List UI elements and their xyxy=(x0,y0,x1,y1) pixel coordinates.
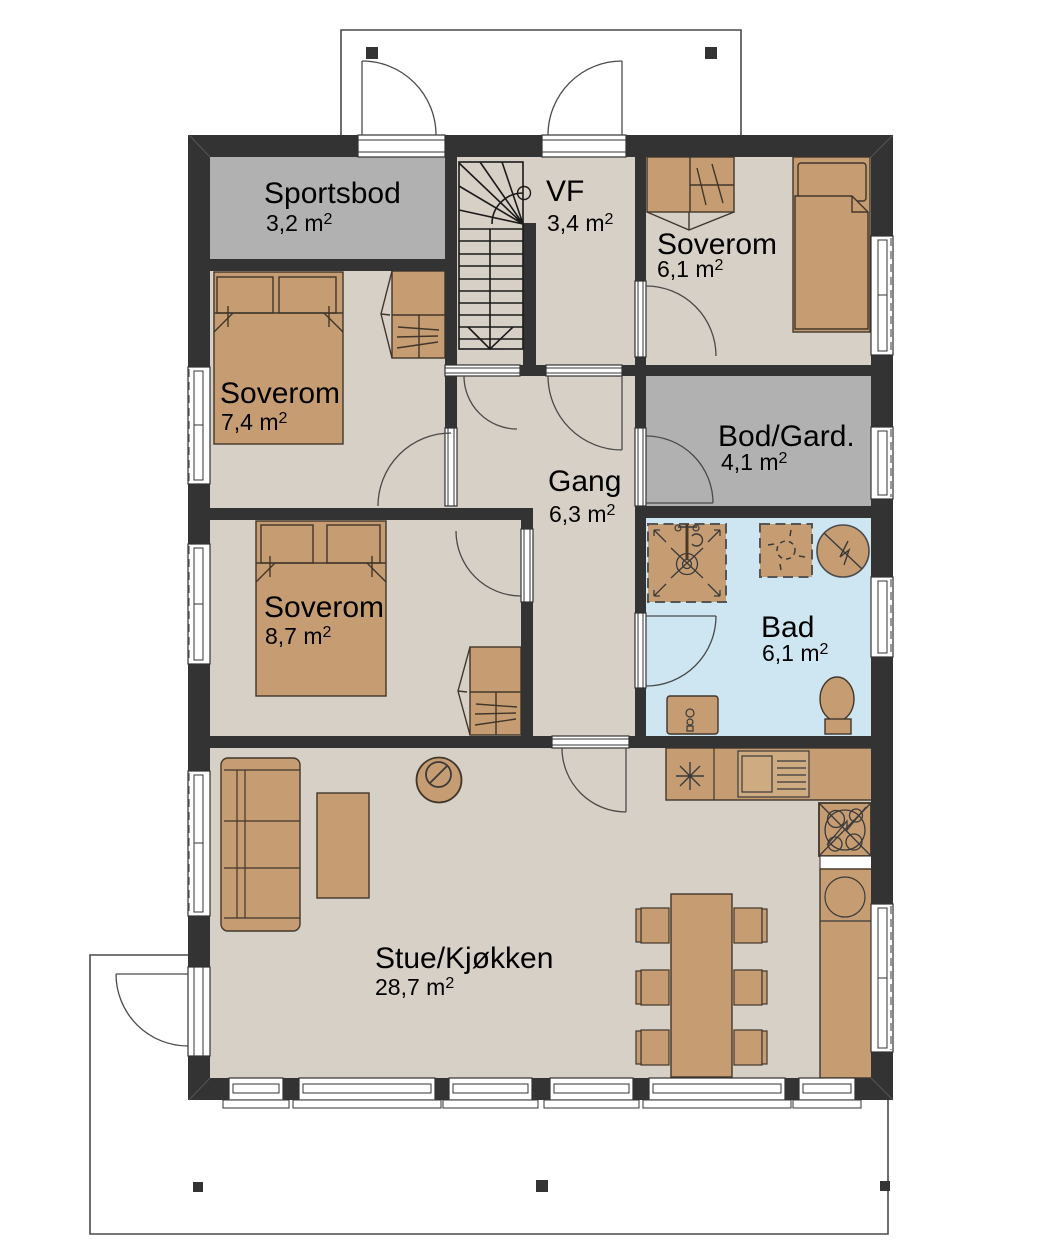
svg-text:28,7 m2: 28,7 m2 xyxy=(375,974,454,1000)
svg-text:6,1 m2: 6,1 m2 xyxy=(762,640,829,666)
svg-text:Soverom: Soverom xyxy=(220,377,340,410)
svg-text:3,4 m2: 3,4 m2 xyxy=(547,210,614,236)
svg-text:Soverom: Soverom xyxy=(264,591,384,624)
svg-text:3,2 m2: 3,2 m2 xyxy=(266,210,333,236)
svg-text:8,7 m2: 8,7 m2 xyxy=(265,623,332,649)
svg-text:7,4 m2: 7,4 m2 xyxy=(221,409,288,435)
svg-text:Sportsbod: Sportsbod xyxy=(264,177,401,210)
svg-text:Stue/Kjøkken: Stue/Kjøkken xyxy=(375,942,553,975)
svg-text:VF: VF xyxy=(546,175,584,208)
svg-text:Gang: Gang xyxy=(548,465,621,498)
svg-text:6,3 m2: 6,3 m2 xyxy=(549,501,616,527)
svg-text:4,1 m2: 4,1 m2 xyxy=(721,449,788,475)
svg-text:6,1 m2: 6,1 m2 xyxy=(657,256,724,282)
